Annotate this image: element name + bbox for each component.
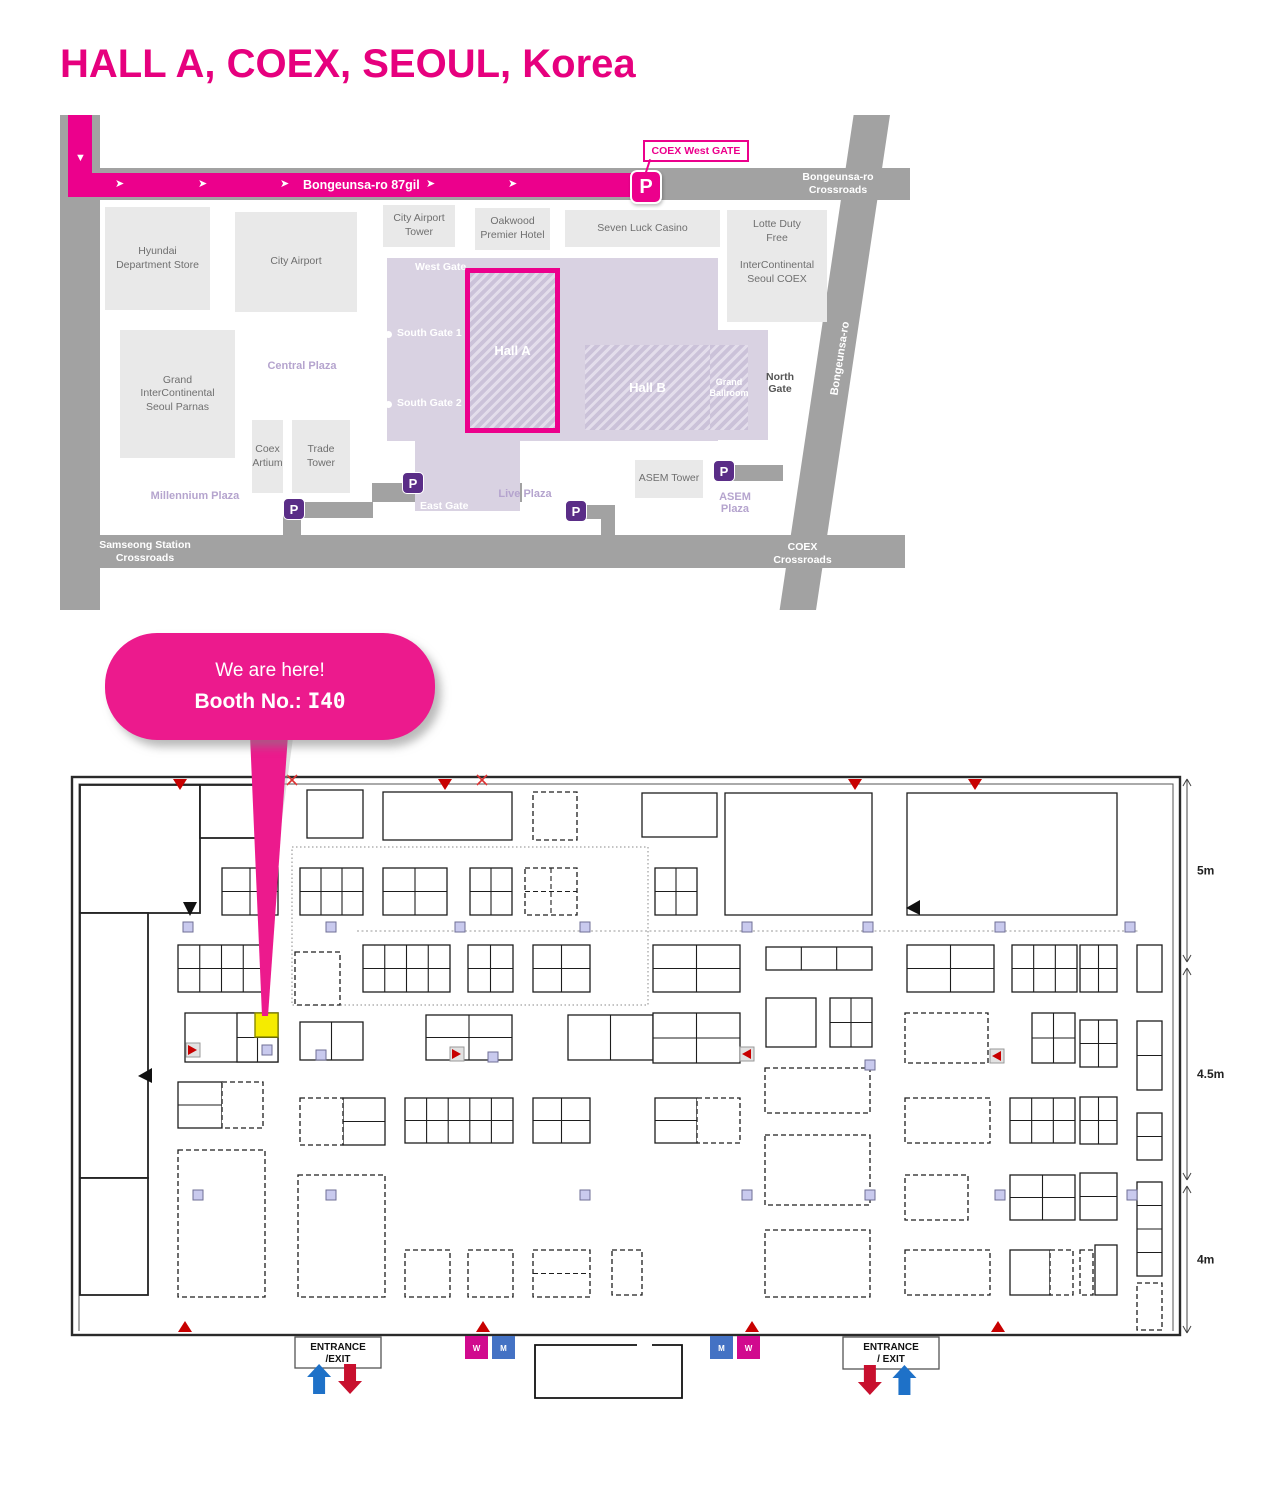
entrance-label: ENTRANCE (863, 1342, 919, 1353)
road-stub (601, 505, 615, 535)
crossroads-label: Samseong Station Crossroads (75, 539, 215, 565)
booth-dashed (697, 1098, 740, 1143)
bottom-room (535, 1345, 682, 1398)
booth-dashed (905, 1175, 968, 1220)
bubble-line1: We are here! (215, 660, 324, 682)
booth-dashed (222, 1082, 263, 1128)
building-trade: Trade Tower (292, 420, 350, 493)
restroom-letter: M (500, 1344, 507, 1353)
pillar (865, 1190, 875, 1200)
gate-label: West Gate (415, 261, 466, 273)
pillar (1125, 922, 1135, 932)
restroom-letter: M (718, 1344, 725, 1353)
route-arrow-icon: ➤ (198, 179, 207, 190)
booth-dashed (1137, 1283, 1162, 1330)
road-stub (728, 465, 783, 481)
hall-b-label: Hall B (629, 380, 666, 395)
plaza-label: Central Plaza (242, 360, 362, 372)
room (80, 785, 200, 913)
route-arrow-down-icon: ▼ (75, 153, 86, 164)
booth-dashed (533, 792, 577, 840)
pillar (326, 922, 336, 932)
route-arrow-icon: ➤ (115, 179, 124, 190)
crossroads-label: Bongeunsa-ro Crossroads (778, 171, 898, 197)
booth (642, 793, 717, 837)
parking-icon: P (283, 498, 305, 520)
hall-a: Hall A (465, 268, 560, 433)
route-road-label: Bongeunsa-ro 87gil (303, 178, 420, 192)
entrance-label: ENTRANCE (310, 1342, 366, 1353)
gate-label: East Gate (420, 500, 468, 512)
pillar (580, 922, 590, 932)
grand-ballroom-label: Grand Ballroom (710, 377, 749, 399)
route-arrow-icon: ➤ (508, 179, 517, 190)
building-coex: Coex Artium (252, 420, 283, 493)
building-lotte-duty: Lotte Duty Free InterContinental Seoul C… (727, 210, 827, 322)
route-arrow-icon: ➤ (280, 179, 289, 190)
pillar (316, 1050, 326, 1060)
booth (725, 793, 872, 915)
entrance-label: / EXIT (877, 1354, 905, 1365)
pillar (580, 1190, 590, 1200)
booth-number: I40 (308, 689, 346, 713)
booth (307, 790, 363, 838)
page: { "title": "HALL A, COEX, SEOUL, Korea",… (0, 0, 1280, 1489)
parking-icon-west-gate: P (630, 170, 662, 204)
booth (383, 792, 512, 840)
hall-a-label: Hall A (494, 343, 530, 358)
booth-dashed (905, 1250, 990, 1295)
building-city-airport: City Airport (235, 212, 357, 312)
booth-dashed (765, 1230, 870, 1297)
booth-dashed (905, 1098, 990, 1143)
booth-dashed (1050, 1250, 1073, 1295)
dimension-label: 4.5m (1197, 1067, 1224, 1081)
plaza-label: ASEM Plaza (705, 491, 765, 515)
hall-b: Hall B (585, 345, 710, 430)
pillar (742, 922, 752, 932)
building-city-airport: City Airport Tower (383, 205, 455, 247)
booth (766, 947, 872, 970)
gate-label: South Gate 2 (397, 397, 462, 409)
entrance-label: /EXIT (325, 1354, 350, 1365)
booth (1010, 1250, 1050, 1295)
pillar (488, 1052, 498, 1062)
booth-dashed (298, 1175, 385, 1297)
pillar (742, 1190, 752, 1200)
building-hyundai: Hyundai Department Store (105, 207, 210, 310)
building-seven-luck-casino: Seven Luck Casino (565, 210, 720, 247)
pillar (193, 1190, 203, 1200)
we-are-here-bubble: We are here! Booth No.: I40 (105, 633, 435, 740)
plaza-label: Live Plaza (465, 488, 585, 500)
booth-dashed (612, 1250, 642, 1295)
booth-dashed (1080, 1250, 1093, 1295)
dimension-label: 5m (1197, 864, 1214, 878)
bubble-line2: Booth No.: I40 (194, 689, 345, 714)
pillar (183, 922, 193, 932)
gate-label: North Gate (766, 371, 794, 395)
room (80, 913, 148, 1178)
building-oakwood: Oakwood Premier Hotel (475, 208, 550, 250)
parking-icon: P (713, 460, 735, 482)
gate-dot (385, 331, 392, 338)
booth-dashed (178, 1150, 265, 1297)
grand-ballroom: Grand Ballroom (710, 345, 748, 430)
page-title: HALL A, COEX, SEOUL, Korea (60, 42, 636, 87)
booth (766, 998, 816, 1047)
coex-west-gate-callout: COEX West GATE (643, 140, 749, 162)
booth-dashed (905, 1013, 988, 1063)
restroom-letter: W (473, 1344, 481, 1353)
location-map: ▼ ➤ ➤ ➤ ➤ ➤ Bongeunsa-ro 87gil Bongeunsa… (60, 115, 910, 610)
gate-label: South Gate 1 (397, 327, 462, 339)
dimension-label: 4m (1197, 1253, 1214, 1267)
plaza-label: Millennium Plaza (115, 490, 275, 502)
booth-dashed (405, 1250, 450, 1297)
bubble-tail (235, 735, 305, 1025)
booth-dashed (468, 1250, 513, 1297)
booth-dashed (765, 1068, 870, 1113)
route-arrow-icon: ➤ (426, 179, 435, 190)
booth-dashed (300, 1098, 343, 1145)
booth (907, 793, 1117, 915)
room (80, 1178, 148, 1295)
pillar (863, 922, 873, 932)
building-grand: Grand InterContinental Seoul Parnas (120, 330, 235, 458)
parking-icon: P (565, 500, 587, 522)
crossroads-label: COEX Crossroads (745, 541, 860, 567)
parking-icon: P (402, 472, 424, 494)
pillar (326, 1190, 336, 1200)
pillar (262, 1045, 272, 1055)
pillar (865, 1060, 875, 1070)
booth (1137, 945, 1162, 992)
restroom-letter: W (745, 1344, 753, 1353)
booth-dashed (765, 1135, 870, 1205)
pillar (995, 1190, 1005, 1200)
pillar (995, 922, 1005, 932)
pillar (455, 922, 465, 932)
pillar (1127, 1190, 1137, 1200)
gate-dot (385, 401, 392, 408)
building-asem-tower: ASEM Tower (635, 460, 703, 498)
booth (1095, 1245, 1117, 1295)
